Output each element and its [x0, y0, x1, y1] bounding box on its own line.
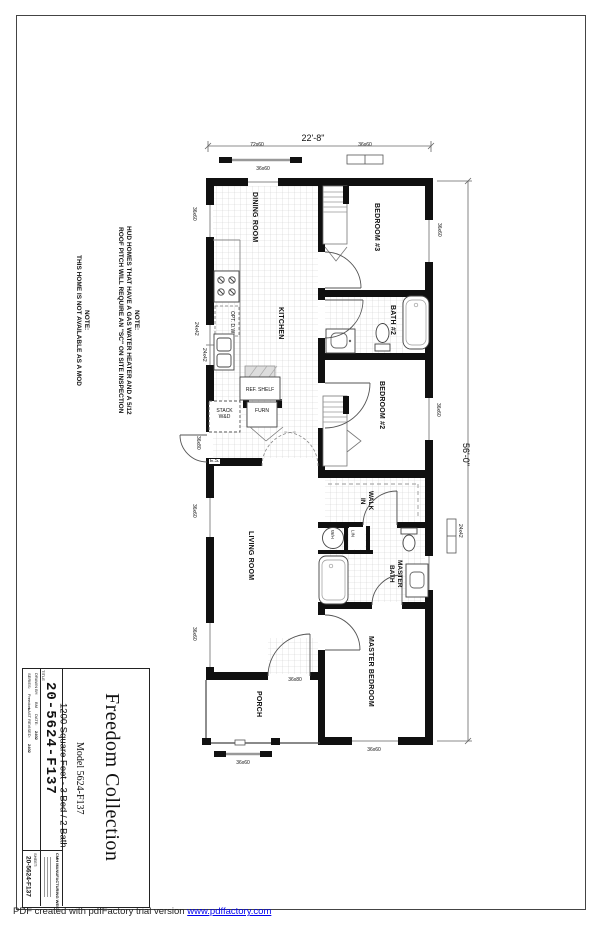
address-text-line: [47, 857, 48, 897]
plan-number: 20-5624-F137: [43, 682, 57, 795]
company-name: CMH MANUFACTURING WEST: [55, 853, 59, 911]
collection-title: Freedom Collection: [102, 693, 122, 861]
bath2-toilet-icon: [375, 324, 390, 352]
note-line: THIS HOME IS NOT AVAILABLE AS A MOD: [74, 192, 82, 448]
note-title: NOTE:: [132, 192, 140, 448]
series-field-label: SERIES:: [27, 673, 31, 689]
sheet-field-label: SHEET:: [33, 853, 37, 867]
living-room-label: LIVING ROOM: [247, 531, 254, 580]
bedroom2-closet: [323, 396, 361, 466]
linen-label: LIN: [350, 530, 355, 537]
master-tub-icon: [319, 556, 348, 604]
note-not-available-as-mod: NOTE: THIS HOME IS NOT AVAILABLE AS A MO…: [65, 192, 90, 448]
address-text-line: [44, 857, 45, 897]
bath2-tub-icon: [403, 296, 429, 349]
shipped-window-36x60-label: 36x60: [352, 143, 378, 148]
porch-label: PORCH: [255, 691, 262, 717]
entry-switch-label: E.S.: [209, 459, 220, 464]
pdf-footer: PDF created with pdfFactory trial versio…: [13, 906, 271, 917]
bath2-label: BATH #2: [389, 305, 396, 335]
bedroom3-closet: [323, 186, 349, 261]
kitchen-sink-icon: [214, 334, 234, 370]
pdffactory-link[interactable]: www.pdffactory.com: [187, 906, 271, 917]
sheet-number: 20-5624-F137: [24, 856, 31, 897]
bedroom2-label: BEDROOM #2: [378, 381, 385, 429]
ref-shelf-label: REF. SHELF: [241, 388, 279, 393]
last-revised-field-label: LAST REVISED:: [27, 708, 31, 738]
stack-wd-label: STACK W&D: [210, 408, 239, 420]
living-window-b-label: 36x60: [191, 627, 196, 641]
living-window-a-label: 36x60: [191, 504, 196, 518]
drawn-by-field-label: DRAWN BY:: [34, 673, 38, 695]
dining-window-label: 36x60: [191, 207, 196, 221]
kitchen-window-b-label: 24x42: [201, 348, 206, 362]
master-bedroom-window-label: 36x60: [362, 748, 386, 753]
date-field-label: DATE:: [34, 714, 38, 725]
specs-line: 1200 Square Feet - 3 Bed / 2 Bath: [58, 703, 68, 848]
opt-dishwasher-label: OPT. D.W.: [229, 311, 234, 334]
side-door-label: 36x80: [195, 436, 200, 450]
note-title: NOTE:: [82, 192, 90, 448]
bedroom2-window-label: 36x60: [435, 403, 440, 417]
drawn-by-value: BM: [34, 702, 38, 708]
note-line: ROOF PITCH WILL REQUIRE AN "SC" ON SITE …: [116, 192, 124, 448]
stove-icon: [214, 271, 239, 302]
master-vanity-icon: [406, 564, 428, 597]
floor-plan-sheet: NOTE: HUD HOMES THAT HAVE A GAS WATER HE…: [0, 0, 600, 927]
title-block-divider: [22, 850, 62, 851]
master-bath-label: MASTER BATH: [386, 546, 403, 602]
last-revised-value: 2402: [27, 744, 31, 753]
water-heater-label: W/H: [330, 530, 335, 539]
master-bath-window-label: 24x42: [457, 524, 462, 538]
porch-shipped-window-label: 36x60: [231, 761, 255, 766]
walkin-closet-label: WALK IN: [358, 483, 374, 519]
address-text-line: [50, 857, 51, 897]
refrigerator-shelf: [240, 366, 280, 400]
top-wall-window-label: 36x60: [250, 167, 276, 172]
bedroom3-label: BEDROOM #3: [373, 203, 380, 251]
note-hud-homes: NOTE: HUD HOMES THAT HAVE A GAS WATER HE…: [104, 192, 140, 448]
shipped-window-72x60-label: 72x60: [244, 143, 270, 148]
width-dimension: 22'-8": [283, 134, 343, 143]
dining-room-label: DINING ROOM: [251, 192, 258, 242]
kitchen-label: KITCHEN: [277, 307, 284, 340]
furnace-label: FURN: [249, 409, 275, 414]
date-value: 2402: [34, 731, 38, 740]
front-door-label: 36x80: [283, 678, 307, 683]
pdf-footer-text: PDF created with pdfFactory trial versio…: [13, 906, 187, 917]
title-block-divider: [40, 668, 41, 906]
master-bedroom-label: MASTER BEDROOM: [367, 636, 374, 707]
kitchen-window-a-label: 24x42: [193, 322, 198, 336]
bath2-vanity-icon: [326, 329, 355, 353]
bedroom3-window-label: 36x60: [436, 223, 441, 237]
note-line: HUD HOMES THAT HAVE A GAS WATER HEATER A…: [124, 192, 132, 448]
length-dimension: 56'-0": [461, 443, 470, 466]
title-field-label: TITLE: [41, 670, 45, 681]
model-number: Model 5624-F137: [74, 742, 84, 815]
